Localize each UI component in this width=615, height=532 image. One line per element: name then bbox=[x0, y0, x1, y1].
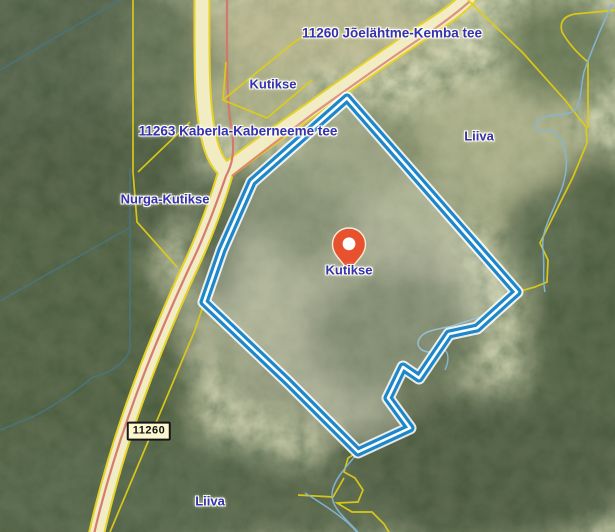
map-canvas bbox=[0, 0, 615, 532]
road-shield-11260: 11260 bbox=[127, 422, 171, 441]
map-viewport[interactable]: 11260 Jõelähtme-Kemba tee 11263 Kaberla-… bbox=[0, 0, 615, 532]
location-marker-icon[interactable] bbox=[331, 227, 367, 274]
